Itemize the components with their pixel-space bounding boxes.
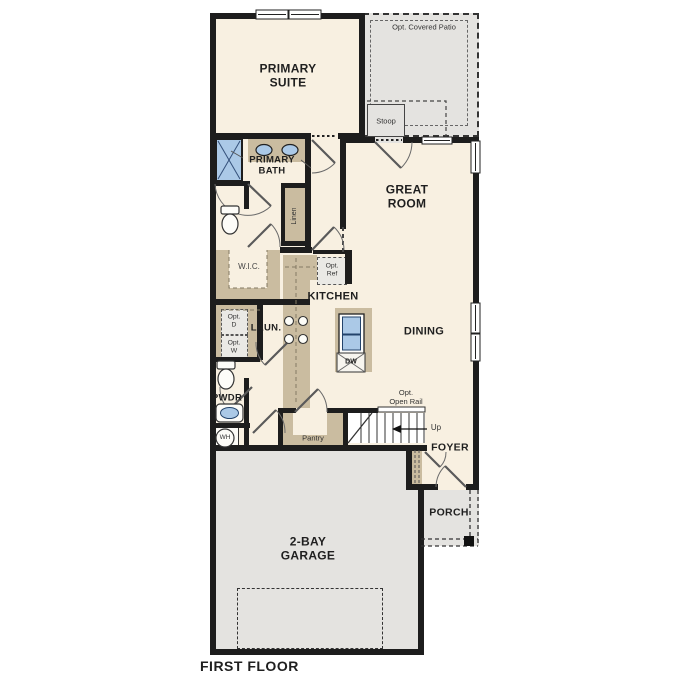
wall (473, 137, 479, 490)
wall (281, 183, 285, 246)
label-opt-ref: Opt. Ref (326, 263, 339, 280)
wall (210, 649, 424, 655)
wall (210, 357, 260, 362)
label-great-room: GREAT ROOM (386, 183, 429, 212)
label-opt-open-rail: Opt. Open Rail (389, 388, 422, 406)
wall (345, 250, 352, 284)
label-up: Up (431, 423, 441, 433)
wall (345, 408, 378, 413)
wall (343, 411, 348, 445)
label-wic: W.I.C. (238, 262, 260, 272)
door-opening (375, 137, 403, 143)
label-garage: 2-BAY GARAGE (281, 535, 335, 564)
wall (340, 137, 479, 143)
wic-shelf-right (267, 250, 280, 294)
wall (418, 490, 424, 655)
wall (340, 137, 346, 229)
label-opt-dryer: Opt. D (228, 314, 241, 331)
wall (244, 181, 249, 209)
floor-plan: Opt. Covered Patio Stoop PRIMARY SUITE G… (0, 0, 687, 687)
wall (305, 139, 311, 253)
wall (280, 247, 312, 253)
label-water-heater: WH (220, 434, 231, 442)
pantry-inner (293, 411, 327, 435)
wall (244, 378, 249, 425)
label-covered-patio: Opt. Covered Patio (392, 23, 456, 32)
wall (278, 411, 283, 447)
kitchen-counter-run (283, 255, 310, 408)
label-porch: PORCH (429, 507, 468, 520)
door-opening (311, 133, 338, 139)
label-linen: Linen (291, 207, 299, 224)
label-laundry: LAUN. (251, 322, 282, 333)
stairs-background (345, 413, 425, 443)
label-foyer: FOYER (431, 442, 469, 455)
wall (466, 484, 479, 490)
label-opt-washer: Opt. W (228, 340, 241, 357)
label-kitchen: KITCHEN (308, 290, 359, 303)
label-dishwasher: DW (345, 359, 357, 368)
wall (210, 13, 365, 19)
label-pantry: Pantry (302, 434, 324, 443)
label-powder: PWDR (212, 392, 242, 403)
garage-door-dashed (237, 588, 383, 649)
wall (359, 13, 365, 143)
door-opening (438, 484, 466, 490)
label-dining: DINING (404, 325, 444, 338)
foyer-closet (412, 449, 422, 485)
wall (210, 445, 427, 451)
wall (210, 13, 216, 655)
plan-title: FIRST FLOOR (200, 658, 299, 675)
label-primary-suite: PRIMARY SUITE (260, 62, 317, 91)
label-primary-bath: PRIMARY BATH (249, 155, 295, 178)
label-stoop: Stoop (376, 117, 396, 126)
